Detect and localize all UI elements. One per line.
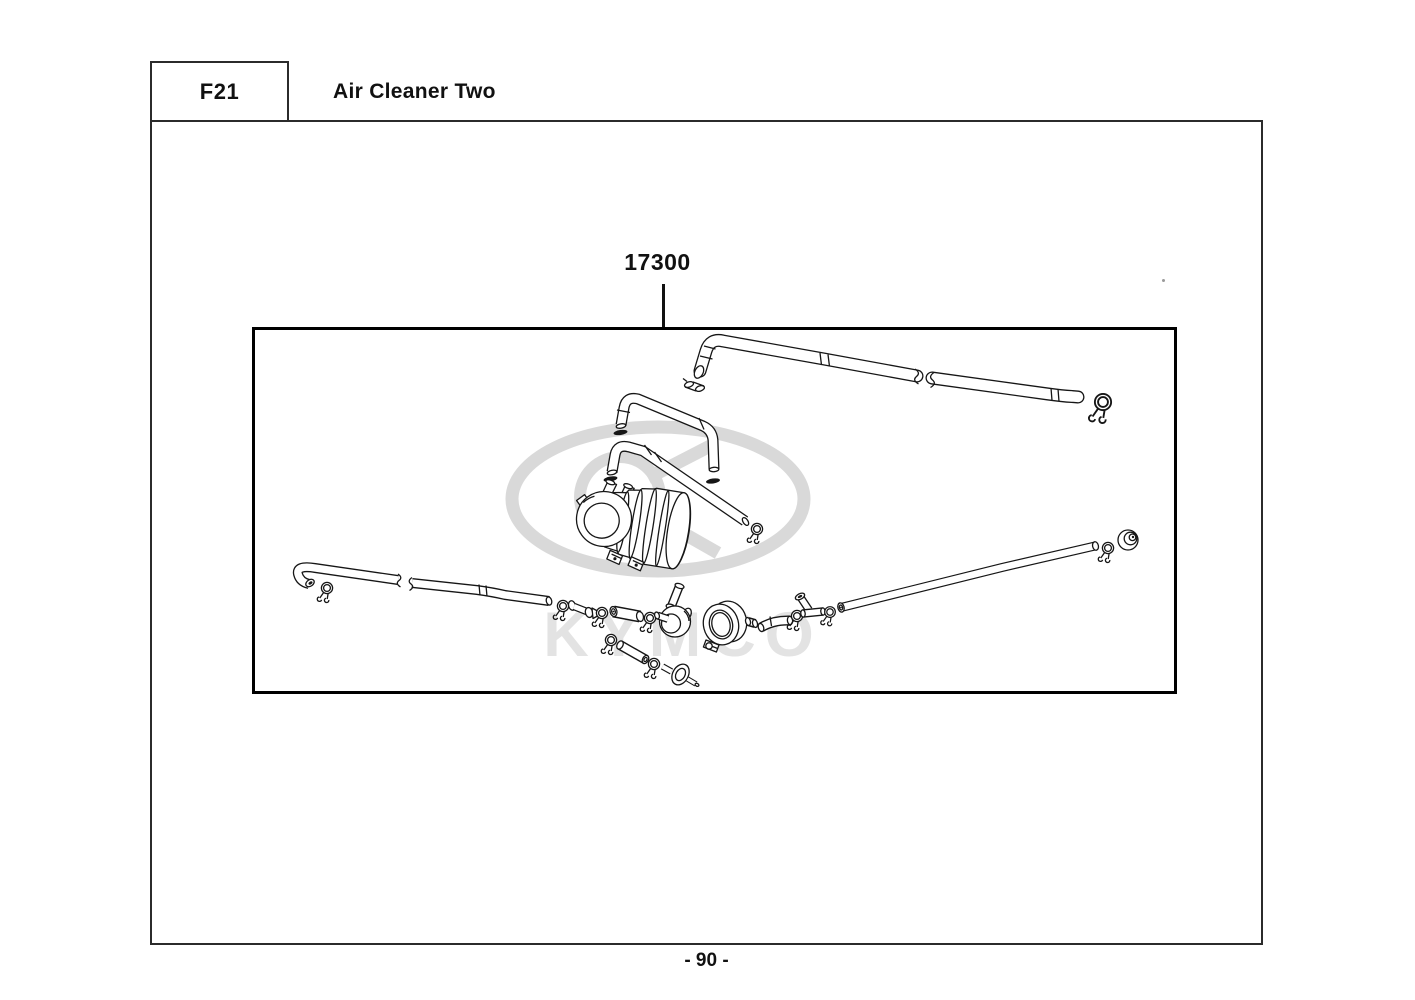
part-number-label: 17300 — [600, 249, 715, 276]
print-speck — [1162, 279, 1165, 282]
section-code: F21 — [200, 79, 239, 105]
section-code-box: F21 — [150, 61, 289, 122]
section-title: Air Cleaner Two — [333, 80, 496, 104]
part-number-leader-line — [662, 284, 665, 328]
figure-border-box — [252, 327, 1177, 694]
page-number: - 90 - — [150, 950, 1263, 972]
catalog-page: F21 Air Cleaner Two 17300 KYMCO — [0, 0, 1415, 1000]
